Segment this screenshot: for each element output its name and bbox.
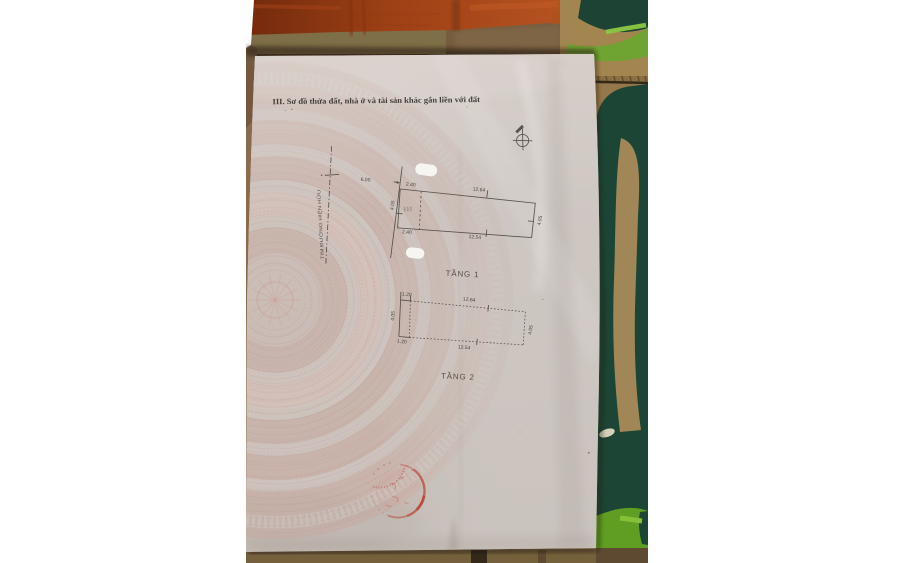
- svg-text:6.00: 6.00: [361, 177, 371, 184]
- svg-text:2.40: 2.40: [406, 182, 416, 189]
- svg-text:4.05: 4.05: [390, 311, 397, 322]
- svg-text:TẦNG 2: TẦNG 2: [441, 370, 475, 381]
- svg-text:12.64: 12.64: [463, 297, 476, 304]
- svg-text:4.05: 4.05: [389, 200, 396, 211]
- svg-text:TẦNG 1: TẦNG 1: [445, 268, 479, 279]
- svg-text:1.20: 1.20: [397, 339, 407, 346]
- svg-text:che: che: [409, 206, 413, 211]
- svg-text:12.54: 12.54: [458, 344, 471, 351]
- svg-text:1.20: 1.20: [402, 292, 412, 299]
- svg-text:12.54: 12.54: [468, 234, 481, 241]
- svg-text:2.40: 2.40: [402, 229, 412, 236]
